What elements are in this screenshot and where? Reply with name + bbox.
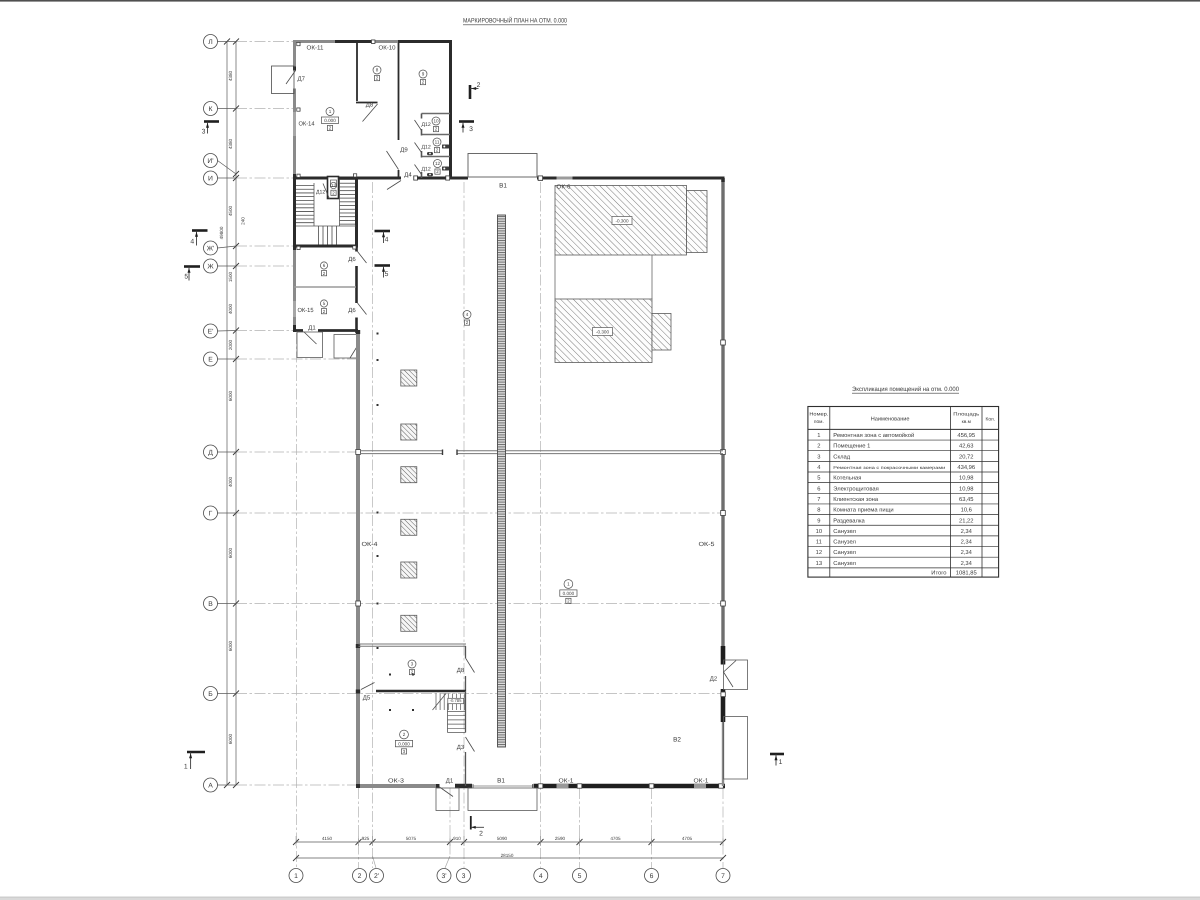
svg-text:МАРКИРОВОЧНЫЙ ПЛАН НА ОТМ. 0.0: МАРКИРОВОЧНЫЙ ПЛАН НА ОТМ. 0.000 [463,17,567,25]
svg-text:0.000: 0.000 [398,741,410,746]
svg-text:6000: 6000 [228,733,233,744]
svg-text:Д5: Д5 [363,695,371,702]
svg-text:ОК-14: ОК-14 [299,121,316,128]
svg-text:ОК-3: ОК-3 [388,778,405,785]
svg-text:0.000: 0.000 [324,118,336,123]
svg-text:-0.785: -0.785 [450,698,463,703]
svg-text:Помещение 1: Помещение 1 [833,444,870,450]
svg-text:28150: 28150 [501,853,514,858]
svg-text:1: 1 [779,759,783,766]
svg-text:Г: Г [209,510,213,517]
svg-text:4705: 4705 [610,836,621,841]
svg-text:Д1: Д1 [446,778,454,785]
svg-text:4: 4 [385,237,389,244]
svg-text:3: 3 [411,662,414,667]
svg-text:Д12: Д12 [422,167,431,173]
svg-text:2,34: 2,34 [961,549,973,556]
svg-text:4: 4 [190,239,194,246]
svg-text:1081,85: 1081,85 [956,569,977,576]
svg-text:240: 240 [241,217,246,225]
svg-text:434,96: 434,96 [957,464,975,471]
svg-text:2590: 2590 [555,836,566,841]
svg-text:2: 2 [403,732,406,737]
svg-text:10,98: 10,98 [959,475,974,482]
svg-text:5090: 5090 [497,836,508,841]
svg-text:Склад: Склад [833,453,850,460]
svg-text:3: 3 [462,873,466,880]
svg-text:Д6: Д6 [348,256,356,263]
svg-text:4500: 4500 [228,205,233,216]
svg-text:Д12: Д12 [422,122,431,128]
svg-text:ОК-15: ОК-15 [298,307,315,314]
svg-text:925: 925 [362,836,370,841]
svg-text:10: 10 [433,119,439,124]
svg-text:4705: 4705 [682,836,693,841]
svg-text:Итого: Итого [931,570,946,576]
svg-text:13: 13 [816,560,822,567]
svg-text:Площадь: Площадь [953,412,980,418]
svg-text:ОК-1: ОК-1 [559,778,575,785]
svg-text:3: 3 [469,126,473,133]
svg-text:-0.300: -0.300 [596,330,609,335]
svg-text:Ремонтная зона с автомойкой: Ремонтная зона с автомойкой [833,432,914,439]
svg-text:6000: 6000 [228,547,233,558]
svg-text:1: 1 [184,764,188,771]
svg-text:2,34: 2,34 [961,560,973,567]
svg-text:20,72: 20,72 [959,453,974,460]
svg-text:9: 9 [422,72,425,77]
svg-text:910: 910 [453,836,461,841]
svg-text:В: В [208,601,213,608]
svg-text:Д8: Д8 [457,667,465,674]
svg-text:2,34: 2,34 [961,539,973,546]
svg-text:1: 1 [294,873,298,880]
svg-text:2: 2 [477,82,481,89]
svg-text:6000: 6000 [228,640,233,651]
svg-text:4380: 4380 [228,138,233,149]
svg-text:4000: 4000 [228,476,233,487]
svg-text:8: 8 [817,507,820,514]
svg-text:Санузел: Санузел [833,549,856,556]
svg-text:0.000: 0.000 [563,591,575,596]
svg-text:ОК-11: ОК-11 [307,45,325,52]
svg-text:4150: 4150 [322,836,333,841]
svg-text:7: 7 [721,873,725,880]
svg-text:10: 10 [816,528,822,535]
svg-text:Д2: Д2 [710,676,718,683]
svg-text:Е: Е [208,356,213,363]
svg-text:Д1: Д1 [308,325,316,332]
svg-text:2000: 2000 [228,339,233,350]
svg-text:ОК-1: ОК-1 [694,778,710,785]
svg-text:Санузел: Санузел [833,528,856,535]
svg-text:456,95: 456,95 [957,432,975,439]
svg-text:Д9: Д9 [400,147,408,154]
svg-text:3: 3 [202,129,206,136]
svg-text:Электрощитовая: Электрощитовая [833,485,878,492]
svg-text:Д8: Д8 [366,102,374,109]
svg-text:Е': Е' [208,328,214,335]
svg-text:Наименование: Наименование [871,417,910,423]
svg-text:13: 13 [331,183,337,188]
svg-text:2: 2 [479,831,483,838]
svg-text:Санузел: Санузел [833,539,856,546]
svg-text:кв.м: кв.м [962,420,971,425]
svg-text:В1: В1 [499,183,507,190]
svg-text:Д: Д [208,449,213,456]
svg-text:10,98: 10,98 [959,485,974,492]
svg-text:6000: 6000 [228,390,233,401]
svg-text:8: 8 [376,68,379,73]
svg-text:В2: В2 [673,737,681,744]
svg-text:4: 4 [466,312,469,317]
svg-text:3: 3 [817,453,820,460]
svg-text:10,6: 10,6 [961,507,972,514]
svg-text:42,63: 42,63 [959,443,974,450]
svg-text:Д12: Д12 [422,145,431,151]
svg-text:11: 11 [816,540,822,546]
svg-text:5: 5 [817,476,820,482]
svg-text:Санузел: Санузел [833,560,856,567]
svg-text:Д6: Д6 [348,307,356,314]
svg-text:63,45: 63,45 [959,496,974,503]
svg-text:2: 2 [817,443,820,450]
svg-text:2: 2 [358,873,362,880]
svg-text:5: 5 [323,301,326,306]
svg-text:2': 2' [374,873,379,880]
svg-text:5: 5 [578,873,582,880]
svg-text:-0.300: -0.300 [615,219,628,224]
svg-text:6: 6 [817,485,820,492]
svg-text:Комната приема пищи: Комната приема пищи [833,508,893,514]
svg-text:12: 12 [816,549,822,556]
svg-text:9: 9 [817,517,820,524]
svg-text:Д7: Д7 [298,76,306,83]
svg-text:4: 4 [539,873,543,880]
svg-text:Экспликация помещений на отм.: Экспликация помещений на отм. 0.000 [852,386,960,393]
svg-text:21,22: 21,22 [959,517,974,524]
svg-text:И: И [208,175,213,182]
svg-text:Клиентская зона: Клиентская зона [833,497,879,503]
svg-text:Д4: Д4 [404,172,412,179]
svg-text:12: 12 [435,161,441,166]
svg-text:ОК-10: ОК-10 [379,45,397,52]
svg-text:3': 3' [441,873,446,880]
svg-text:5075: 5075 [406,836,417,841]
svg-text:1: 1 [567,582,570,587]
svg-text:Б: Б [208,691,213,698]
svg-text:6: 6 [323,263,326,268]
svg-text:В1: В1 [497,778,505,785]
svg-text:ОК-6: ОК-6 [557,184,572,191]
svg-text:4380: 4380 [228,70,233,81]
svg-text:Л: Л [208,39,212,46]
svg-text:Ж: Ж [207,263,214,270]
svg-text:А: А [208,782,213,789]
svg-text:ОК-4: ОК-4 [362,541,379,548]
svg-text:6: 6 [650,873,654,880]
svg-text:Раздевалка: Раздевалка [833,518,865,524]
svg-text:ОК-5: ОК-5 [699,541,716,548]
svg-text:49800: 49800 [219,226,224,239]
svg-text:5: 5 [385,271,389,278]
svg-text:Номер.: Номер. [809,412,828,418]
svg-text:Котельная: Котельная [833,476,861,482]
svg-text:К: К [209,106,213,113]
svg-text:пом.: пом. [814,420,824,425]
svg-text:2,34: 2,34 [961,528,973,535]
svg-text:1: 1 [817,433,820,439]
svg-text:1500: 1500 [228,271,233,282]
svg-text:Ремонтная зона с покрасочными: Ремонтная зона с покрасочными камерами [833,465,946,470]
svg-text:5: 5 [184,274,188,281]
svg-text:Д3: Д3 [457,744,465,751]
svg-text:7: 7 [817,497,820,503]
svg-text:4000: 4000 [228,303,233,314]
svg-text:Кол.: Кол. [986,417,996,423]
svg-text:Ж': Ж' [207,245,215,252]
svg-text:Д12: Д12 [316,190,325,196]
svg-text:1: 1 [329,109,332,114]
svg-text:11: 11 [435,140,440,145]
svg-text:И': И' [207,158,213,165]
